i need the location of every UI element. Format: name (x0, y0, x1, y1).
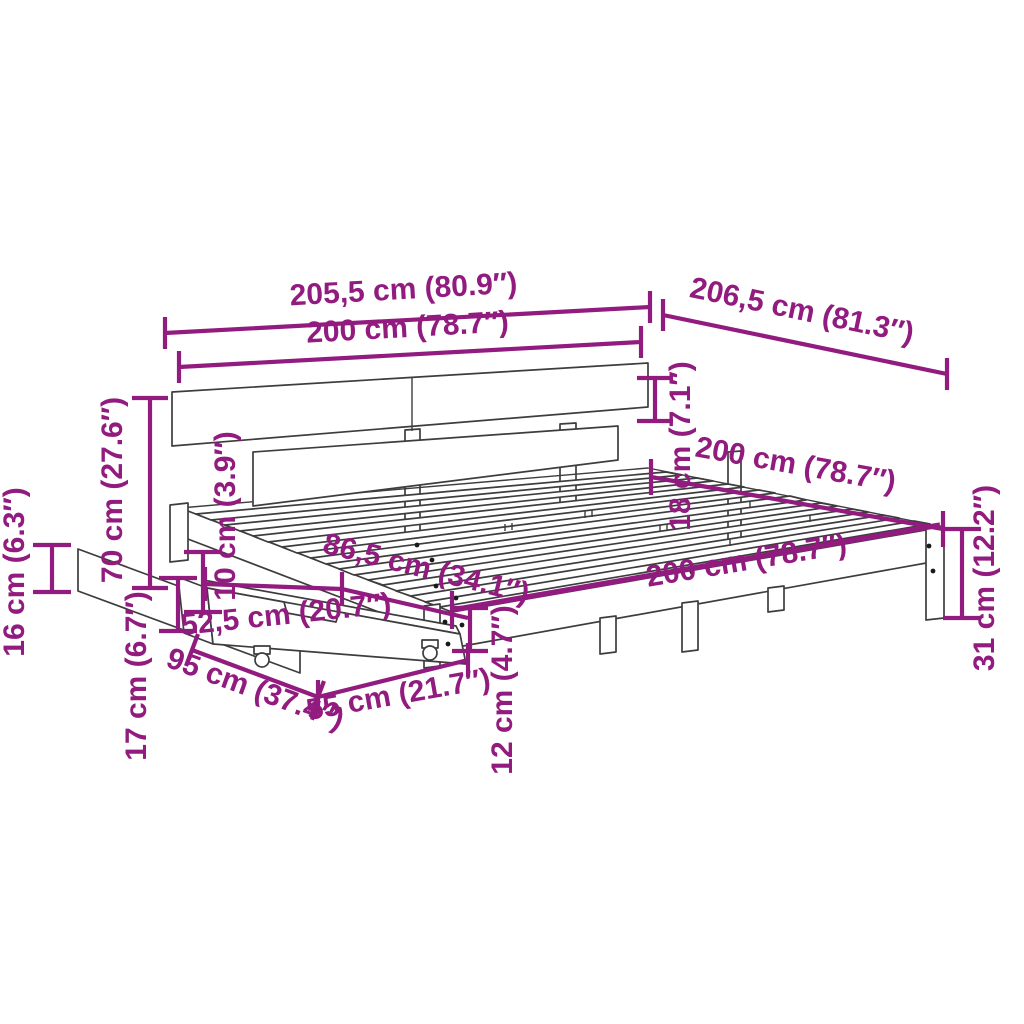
dim-under-rail-clearance: 10 cm (3.9″) (209, 431, 242, 600)
dim-frame-height: 31 cm (12.2″) (968, 485, 1001, 671)
dim-drawer-height: 12 cm (4.7″) (486, 605, 519, 774)
dim-headboard-board-height: 18 cm (7.1″) (664, 361, 697, 530)
dimension-diagram: 205,5 cm (80.9″) 200 cm (78.7″) 206,5 cm… (0, 0, 1024, 1024)
dim-panel-height: 16 cm (6.3″) (0, 487, 31, 656)
dim-overall-length: 206,5 cm (81.3″) (687, 271, 917, 350)
dim-drawer-side-height: 17 cm (6.7″) (120, 591, 153, 760)
dim-drawer-width: 55 cm (21.7″) (304, 662, 493, 727)
bed-frame-drawing: 205,5 cm (80.9″) 200 cm (78.7″) 206,5 cm… (0, 0, 1024, 1024)
dim-overall-width: 205,5 cm (80.9″) (289, 267, 518, 313)
dim-headboard-height: 70 cm (27.6″) (96, 397, 129, 583)
dim-headboard-width: 200 cm (78.7″) (305, 305, 509, 349)
